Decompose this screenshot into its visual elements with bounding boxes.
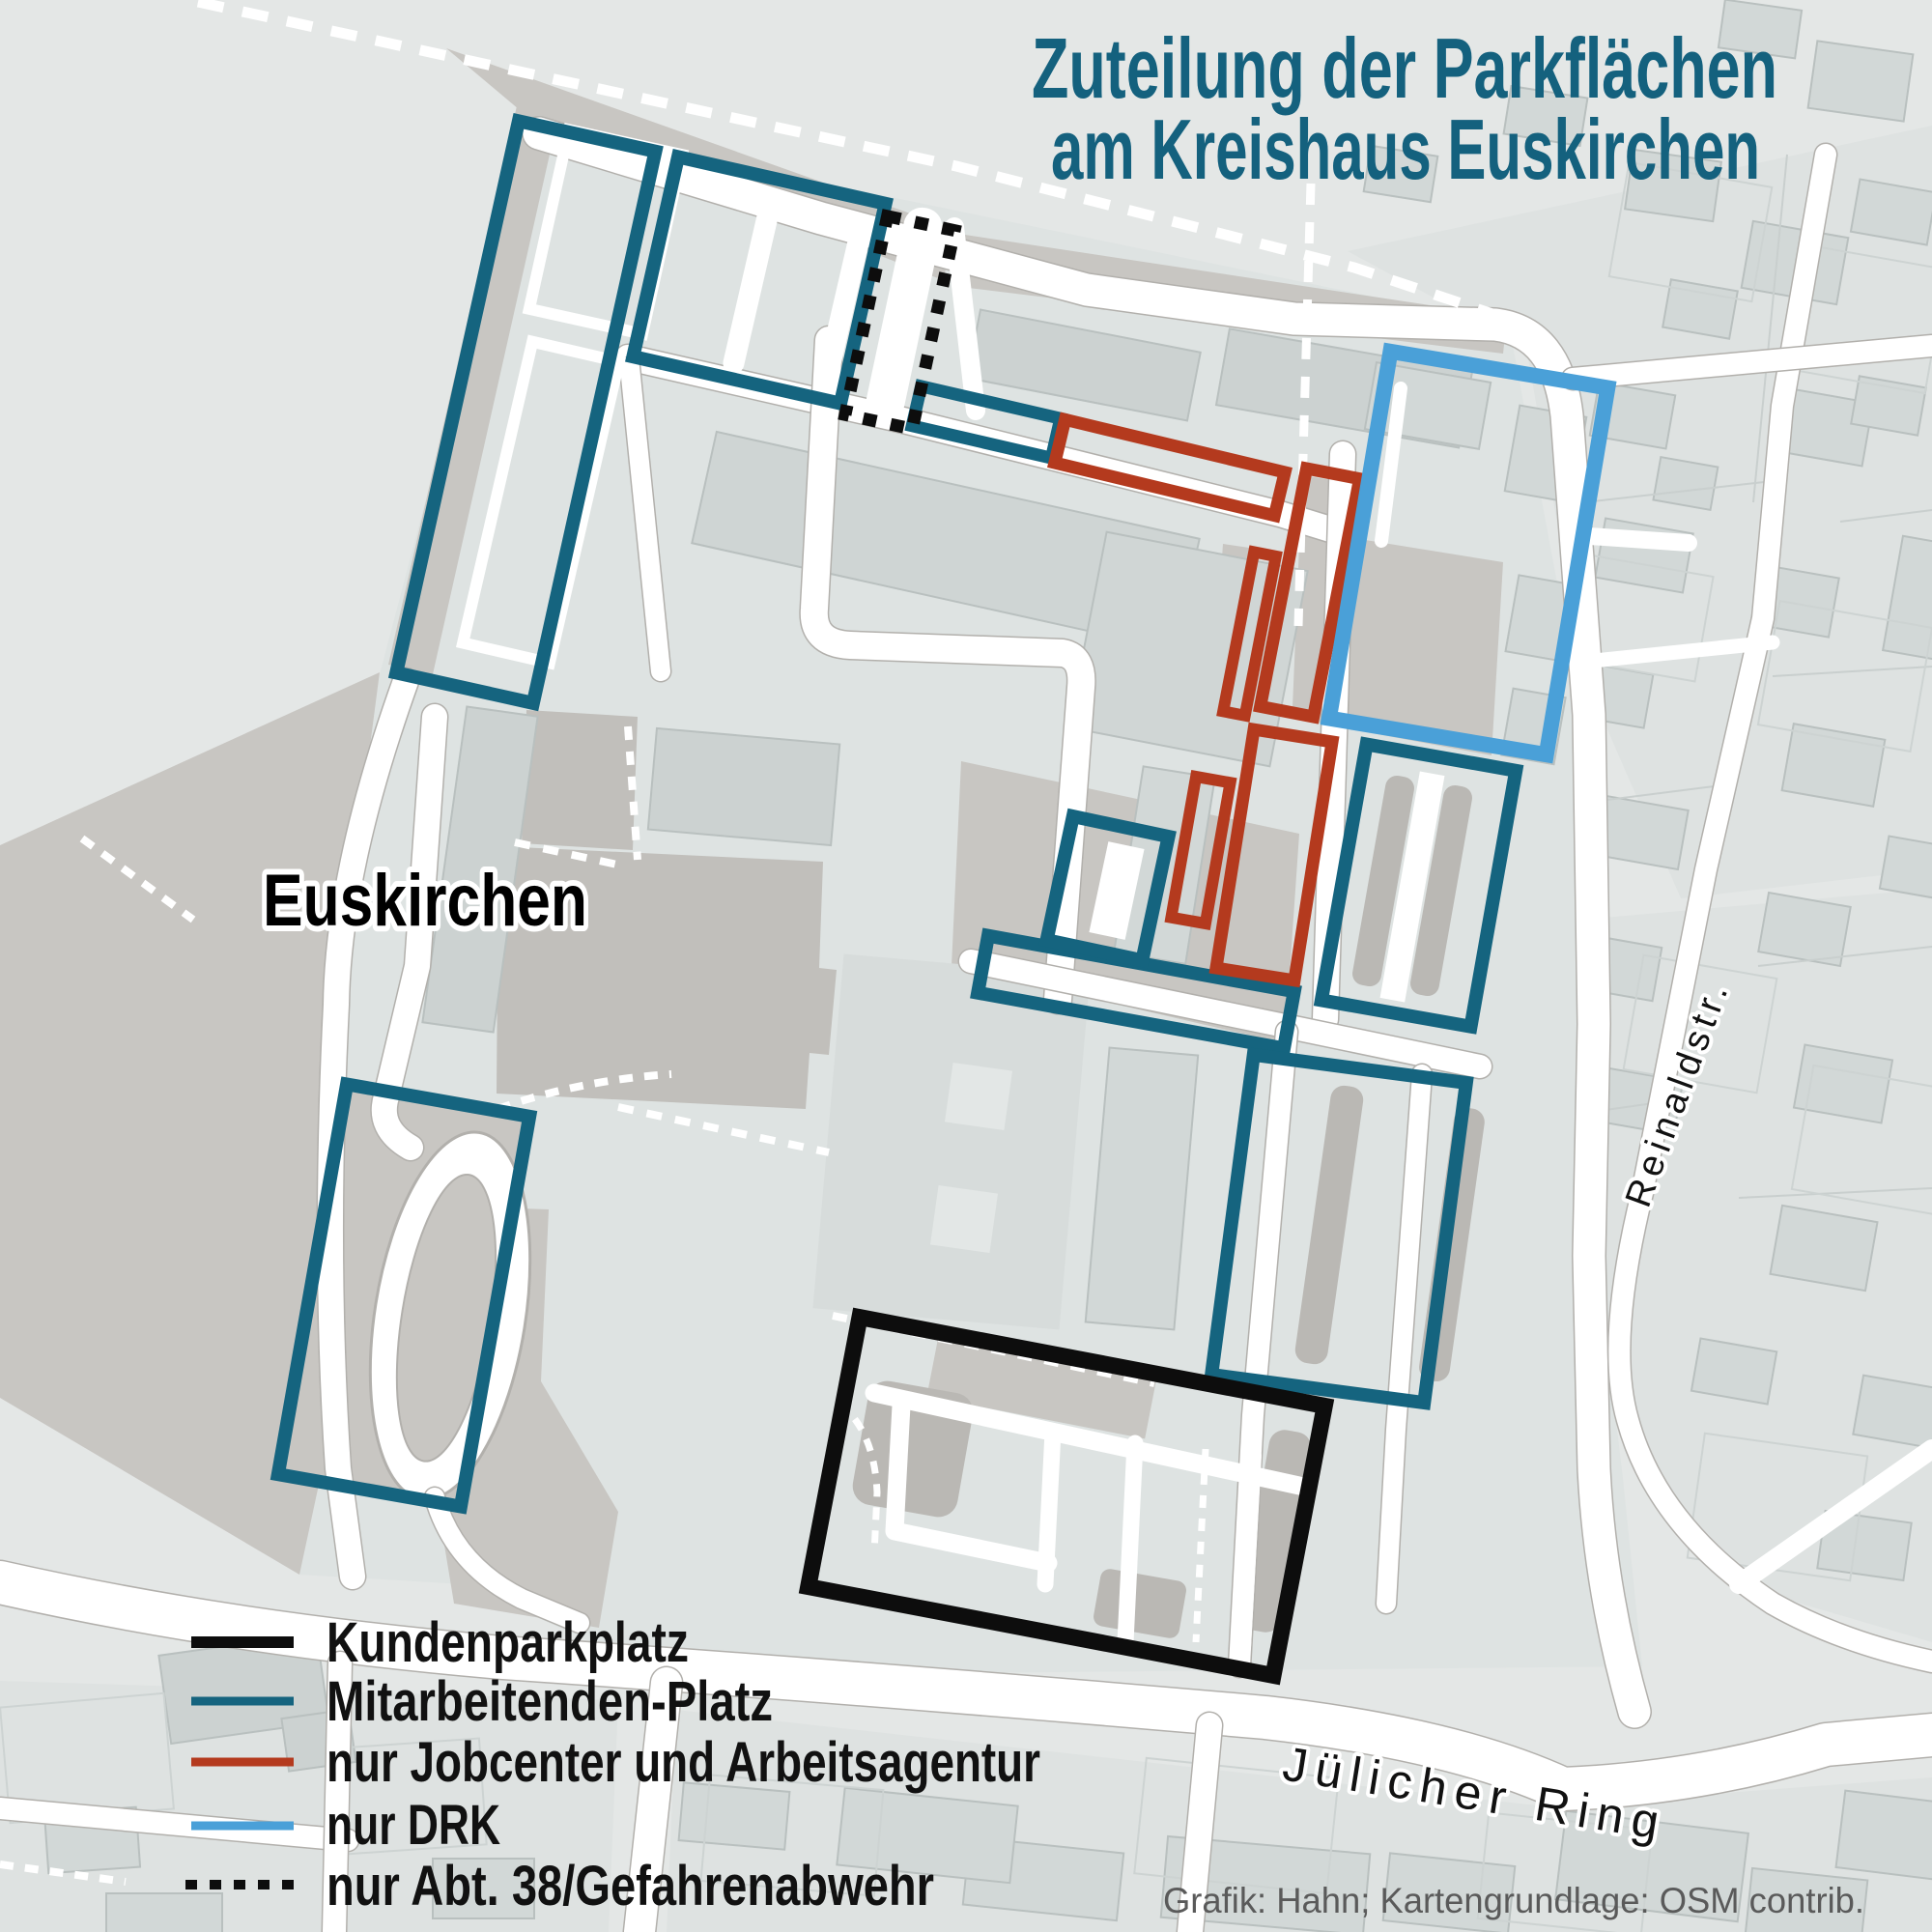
svg-text:Mitarbeitenden-Platz: Mitarbeitenden-Platz — [327, 1670, 773, 1733]
svg-text:Grafik: Hahn; Kartengrundlage:: Grafik: Hahn; Kartengrundlage: OSM contr… — [1163, 1881, 1864, 1920]
svg-text:nur DRK: nur DRK — [327, 1794, 500, 1857]
svg-text:am Kreishaus Euskirchen: am Kreishaus Euskirchen — [1051, 101, 1760, 197]
svg-text:nur Jobcenter und Arbeitsagent: nur Jobcenter und Arbeitsagentur — [327, 1731, 1040, 1794]
svg-text:Kundenparkplatz: Kundenparkplatz — [327, 1611, 689, 1674]
svg-text:nur Abt. 38/Gefahrenabwehr: nur Abt. 38/Gefahrenabwehr — [327, 1855, 934, 1918]
svg-text:Euskirchen: Euskirchen — [263, 860, 587, 942]
